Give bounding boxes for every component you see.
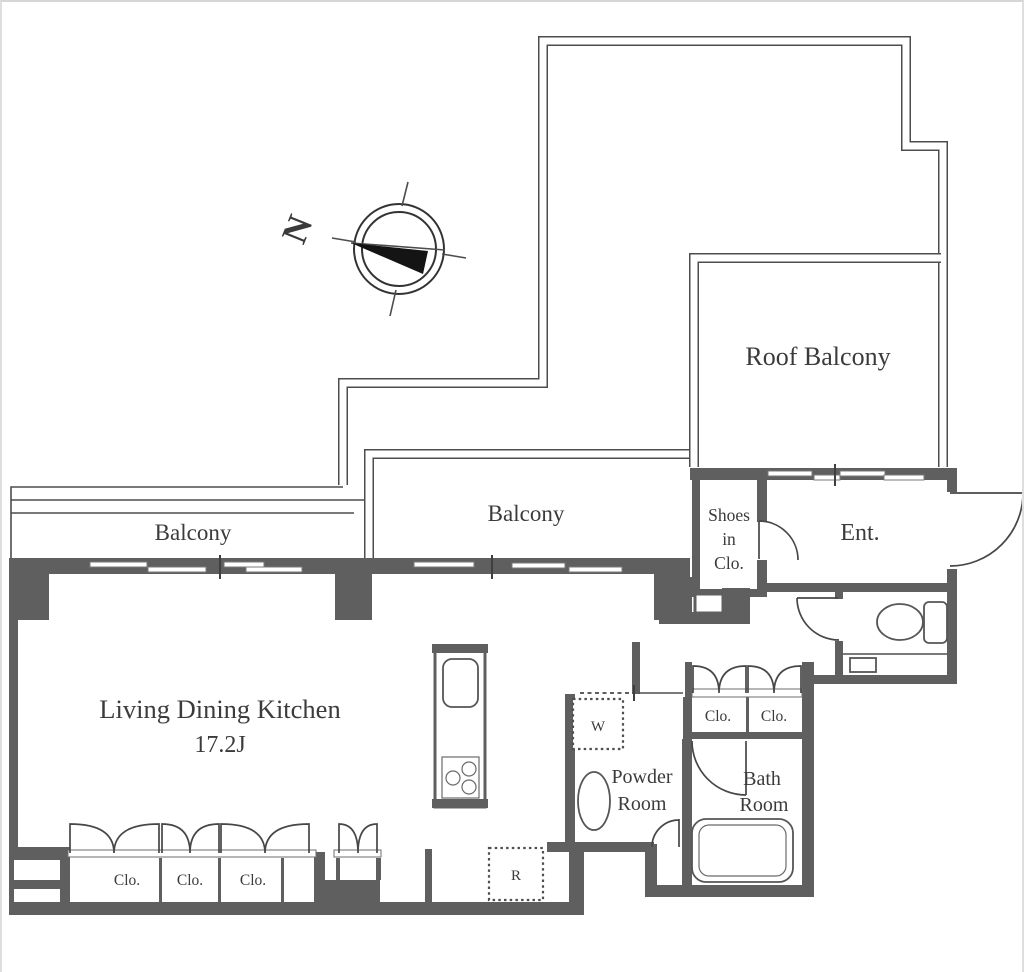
bifold-closet-1: [70, 824, 159, 853]
wall-ldk-sw-a: [9, 847, 62, 860]
label-ldk-closet-2: Clo.: [177, 872, 203, 889]
bifold-closet-2: [162, 824, 219, 853]
wall-closet4-right: [376, 858, 381, 880]
powder-basin: [578, 772, 610, 830]
wall-hallcloset-left: [685, 662, 692, 739]
label-ldk-closet-3: Clo.: [240, 872, 266, 889]
wall-block-sw: [324, 880, 380, 905]
compass: N: [274, 182, 466, 316]
wall-shoes-right-a: [757, 472, 767, 522]
wall-closet4-left: [336, 858, 340, 880]
wall-hallcloset-south: [689, 732, 802, 739]
pillar-middle: [335, 558, 372, 620]
pillar-left: [9, 558, 49, 620]
label-powder-1: Powder: [611, 766, 672, 788]
label-ldk-closet-1: Clo.: [114, 872, 140, 889]
wall-powder-south: [547, 842, 654, 852]
label-shoes-2: in: [722, 529, 736, 549]
label-hall-closet-1: Clo.: [705, 708, 731, 725]
wall-closet-div-1: [159, 858, 162, 903]
wall-powder-sw: [569, 844, 584, 915]
label-balcony-center: Balcony: [488, 501, 565, 526]
bath-door: [692, 741, 746, 795]
label-powder-2: Room: [618, 793, 667, 815]
bathtub: [692, 819, 793, 882]
label-roof-balcony: Roof Balcony: [745, 342, 890, 371]
wall-closet-div-2: [218, 858, 221, 903]
entrance-door-opening: [945, 492, 959, 569]
hall-closet-sill: [692, 689, 802, 697]
wall-bath-south: [657, 885, 814, 897]
wall-closet-div-3: [281, 858, 284, 903]
bifold-closet-4: [339, 824, 377, 853]
niche-under-shoes-closet: [695, 594, 723, 613]
label-hall-closet-2: Clo.: [761, 708, 787, 725]
wall-kitchen-stub: [425, 849, 432, 902]
entrance-door: [950, 493, 1023, 566]
wall-toilet-south: [809, 675, 957, 684]
toilet-bowl: [877, 604, 923, 640]
kitchen-counter: [432, 644, 488, 808]
floorplan-canvas: N Roof Balcony Balcony Balcony Shoes in …: [2, 2, 1024, 972]
floorplan-page: N Roof Balcony Balcony Balcony Shoes in …: [0, 0, 1024, 972]
wall-closetrow-right: [314, 852, 325, 905]
toilet-door: [797, 598, 839, 640]
wall-hall-block-a: [659, 577, 692, 624]
label-ldk: Living Dining Kitchen: [99, 694, 340, 724]
toilet-basin: [850, 658, 876, 672]
wall-shoes-left: [692, 472, 700, 597]
wall-entrance-south: [758, 583, 949, 592]
label-ldk-size: 17.2J: [194, 732, 245, 758]
toilet-tank: [924, 602, 947, 643]
toilet: [850, 602, 947, 672]
wall-ldk-south: [9, 902, 584, 915]
wall-corridor-south: [645, 844, 657, 897]
wall-bath-left: [682, 739, 692, 895]
label-shoes-1: Shoes: [708, 505, 750, 525]
powder-door: [652, 819, 679, 847]
wall-bath-right: [802, 662, 814, 897]
label-shoes-3: Clo.: [714, 553, 744, 573]
bifold-closet-3: [221, 824, 309, 853]
wall-hallcloset-divider: [746, 697, 749, 733]
label-entrance: Ent.: [840, 520, 879, 546]
label-bath-2: Room: [740, 794, 789, 816]
wall-hall-block-c: [722, 588, 750, 614]
compass-north-label: N: [274, 210, 321, 249]
shoes-closet-door: [759, 521, 798, 560]
wall-toilet-left-b: [835, 641, 843, 676]
label-washing-machine: W: [591, 719, 606, 735]
wall-ldk-west: [9, 620, 18, 852]
label-bath-1: Bath: [743, 768, 781, 790]
label-balcony-left: Balcony: [155, 520, 232, 545]
closet-row-sill: [68, 850, 316, 857]
wall-ldk-sw-c: [9, 847, 14, 907]
wall-ldk-sw-b: [12, 880, 60, 889]
label-refrigerator: R: [511, 868, 521, 884]
